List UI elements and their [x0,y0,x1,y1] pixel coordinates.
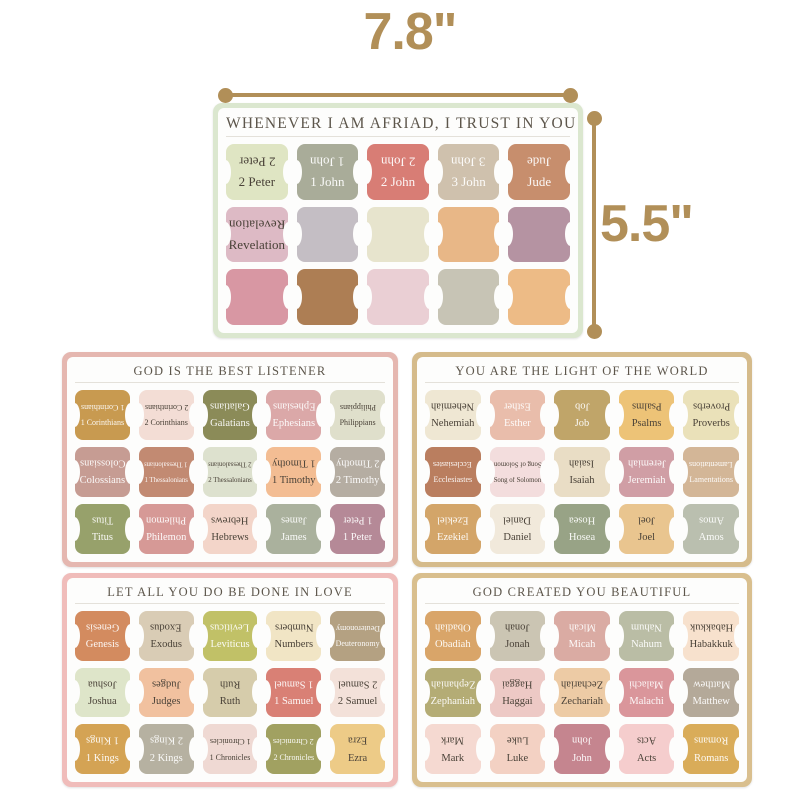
bible-tab: 2 Kings2 Kings [139,724,194,774]
sheet-title: WHENEVER I AM AFRIAD, I TRUST IN YOU [226,111,570,137]
tab-label-top: Exodus [150,621,182,633]
bible-tab: PhilemonPhilemon [139,504,194,554]
tab-label-top: 2 Chronicles [273,736,314,745]
tab-label-bottom: Titus [92,532,113,544]
tab-label-top: Jude [527,154,551,168]
measure-endpoint-dot [587,324,602,339]
tab-label-top: 3 John [451,154,485,168]
tab-label-top: 2 Timothy [336,457,379,469]
tab-label-bottom: 3 John [451,175,485,189]
blank-tab [297,269,359,325]
tab-label-top: Ephesians [273,400,316,412]
tab-label-top: 1 Timothy [272,457,315,469]
tab-label-bottom: Acts [637,753,656,765]
tab-label-bottom: Leviticus [210,639,249,651]
tab-label-bottom: 2 John [381,175,415,189]
height-dimension-label: 5.5" [600,194,693,254]
height-measure-line [592,118,596,331]
tab-label-bottom: Revelation [229,238,285,252]
bible-tab: HebrewsHebrews [203,504,258,554]
tab-label-bottom: 1 Thessalonians [144,477,187,484]
blank-tab [297,207,359,263]
bible-tab: EphesiansEphesians [266,390,321,440]
tab-label-top: Obadiah [435,621,471,633]
tab-label-bottom: Matthew [693,696,730,708]
bible-tab: RomansRomans [683,724,739,774]
bible-tab: JamesJames [266,504,321,554]
tab-label-bottom: Jeremiah [628,475,666,487]
sheet-panel: GOD IS THE BEST LISTENER 1 Corinthians1 … [67,357,393,562]
tab-label-top: 2 Corinthians [145,402,188,411]
tab-label-top: 1 Chronicles [210,736,251,745]
tab-label-bottom: Obadiah [435,639,471,651]
bible-tab: LamentationsLamentations [683,447,739,497]
tab-label-top: John [572,734,592,746]
bible-tab: NehemiahNehemiah [425,390,481,440]
tab-label-top: Esther [504,400,531,412]
measure-endpoint-dot [218,88,233,103]
tab-label-bottom: Ecclesiastes [433,476,472,485]
tab-label-top: Zechariah [561,678,603,690]
sheet-panel: YOU ARE THE LIGHT OF THE WORLD NehemiahN… [417,357,747,562]
tab-grid: NehemiahNehemiahEstherEstherJobJobPsalms… [425,390,739,554]
bible-tab: ZechariahZechariah [554,668,610,718]
measure-endpoint-dot [587,111,602,126]
tab-label-top: Job [575,400,590,412]
tab-label-bottom: Daniel [503,532,531,544]
tab-label-bottom: Genesis [86,639,119,651]
tab-label-bottom: John [572,753,592,765]
sticker-sheet-done-in-love: LET ALL YOU DO BE DONE IN LOVE GenesisGe… [62,573,398,787]
bible-tab: 2 Samuel2 Samuel [330,668,385,718]
bible-tab: NumbersNumbers [266,611,321,661]
tab-grid: 2 Peter2 Peter1 John1 John2 John2 John3 … [226,144,570,325]
tab-label-top: 1 Peter [343,514,372,526]
bible-tab: ObadiahObadiah [425,611,481,661]
tab-label-top: Jeremiah [628,457,666,469]
tab-label-bottom: Malachi [629,696,663,708]
tab-label-bottom: James [281,532,307,544]
tab-label-bottom: Micah [569,639,596,651]
bible-tab: 2 Thessalonians2 Thessalonians [203,447,258,497]
tab-label-top: Nahum [631,621,662,633]
tab-label-bottom: Nahum [631,639,662,651]
tab-label-top: 1 Thessalonians [144,460,187,467]
tab-grid: ObadiahObadiahJonahJonahMicahMicahNahumN… [425,611,739,774]
tab-label-bottom: Romans [694,753,728,765]
width-measure-line [225,93,571,97]
bible-tab: PsalmsPsalms [619,390,675,440]
tab-label-top: 2 John [381,154,415,168]
bible-tab: RevelationRevelation [226,207,288,263]
bible-tab: 1 Chronicles1 Chronicles [203,724,258,774]
sheet-panel: WHENEVER I AM AFRIAD, I TRUST IN YOU 2 P… [218,108,578,333]
bible-tab: 2 John2 John [367,144,429,200]
bible-tab: GenesisGenesis [75,611,130,661]
bible-tab: DeuteronomyDeuteronomy [330,611,385,661]
tab-label-bottom: 2 Peter [239,175,275,189]
blank-tab [367,207,429,263]
sheet-title: LET ALL YOU DO BE DONE IN LOVE [75,581,385,604]
bible-tab: JudeJude [508,144,570,200]
tab-label-top: Zephaniah [431,678,475,690]
tab-label-bottom: 1 Kings [86,753,119,765]
tab-label-bottom: Amos [699,532,724,544]
tab-label-top: Isaiah [569,457,594,469]
tab-label-top: Philemon [146,514,186,526]
bible-tab: JoelJoel [619,504,675,554]
bible-tab: 2 Corinthians2 Corinthians [139,390,194,440]
bible-tab: MalachiMalachi [619,668,675,718]
bible-tab: LukeLuke [490,724,546,774]
bible-tab: NahumNahum [619,611,675,661]
tab-label-top: Proverbs [693,400,730,412]
bible-tab: EcclesiastesEcclesiastes [425,447,481,497]
tab-label-top: Malachi [629,678,663,690]
bible-tab: EstherEsther [490,390,546,440]
bible-tab: PhilippiansPhilippians [330,390,385,440]
bible-tab: 1 Samuel1 Samuel [266,668,321,718]
tab-label-top: Romans [694,734,728,746]
tab-label-bottom: Ruth [220,696,240,708]
tab-label-bottom: Galatians [210,418,250,430]
tab-label-top: Mark [441,734,464,746]
bible-tab: MatthewMatthew [683,668,739,718]
sticker-sheet-you-are-the-light: YOU ARE THE LIGHT OF THE WORLD NehemiahN… [412,352,752,567]
blank-tab [226,269,288,325]
tab-label-bottom: Song of Solomon [494,477,542,484]
tab-label-bottom: Esther [504,418,531,430]
bible-tab: JoshuaJoshua [75,668,130,718]
sticker-sheet-whenever-i-am-afriad: WHENEVER I AM AFRIAD, I TRUST IN YOU 2 P… [213,103,583,338]
tab-label-bottom: 2 Thessalonians [208,477,251,484]
tab-label-bottom: Hebrews [211,532,248,544]
bible-tab: 1 Thessalonians1 Thessalonians [139,447,194,497]
tab-label-top: 1 Samuel [274,678,313,690]
tab-label-top: 1 Corinthians [81,402,124,411]
bible-tab: HabakkukHabakkuk [683,611,739,661]
bible-tab: 1 Peter1 Peter [330,504,385,554]
tab-label-top: Numbers [275,621,314,633]
width-dimension-label: 7.8" [330,2,490,62]
tab-label-bottom: Hosea [569,532,595,544]
tab-label-bottom: 2 Kings [150,753,183,765]
bible-tab: ProverbsProverbs [683,390,739,440]
tab-label-top: Micah [569,621,596,633]
tab-label-bottom: Deuteronomy [336,640,380,649]
tab-label-bottom: Numbers [275,639,314,651]
tab-label-bottom: Jude [527,175,551,189]
tab-label-top: Hosea [569,514,595,526]
bible-tab: ColossiansColossians [75,447,130,497]
tab-label-top: Ezekiel [437,514,468,526]
blank-tab [508,269,570,325]
tab-label-bottom: 1 Chronicles [210,754,251,763]
tab-label-top: Joshua [88,678,117,690]
tab-label-top: Leviticus [210,621,249,633]
tab-label-top: Joel [638,514,655,526]
tab-label-top: Nehemiah [431,400,474,412]
bible-tab: IsaiahIsaiah [554,447,610,497]
bible-tab: DanielDaniel [490,504,546,554]
tab-label-bottom: Judges [152,696,181,708]
tab-label-bottom: Proverbs [693,418,730,430]
bible-tab: HaggaiHaggai [490,668,546,718]
tab-label-top: Deuteronomy [336,623,380,632]
tab-label-bottom: Ephesians [273,418,316,430]
sheet-title: GOD CREATED YOU BEAUTIFUL [425,581,739,604]
tab-label-bottom: 1 Timothy [272,475,315,487]
bible-tab: ZephaniahZephaniah [425,668,481,718]
tab-label-top: Philippians [340,402,376,411]
sheet-title: YOU ARE THE LIGHT OF THE WORLD [425,360,739,383]
bible-tab: JudgesJudges [139,668,194,718]
tab-label-bottom: Haggai [502,696,532,708]
bible-tab: Song of SolomonSong of Solomon [490,447,546,497]
tab-label-bottom: Ezekiel [437,532,468,544]
tab-label-bottom: Job [575,418,590,430]
tab-label-bottom: Jonah [505,639,530,651]
tab-label-top: 2 Kings [150,734,183,746]
sticker-sheet-god-is-the-best-listener: GOD IS THE BEST LISTENER 1 Corinthians1 … [62,352,398,567]
bible-tab: JonahJonah [490,611,546,661]
tab-label-bottom: Isaiah [569,475,594,487]
tab-label-bottom: Ezra [348,753,367,765]
blank-tab [508,207,570,263]
tab-label-bottom: 1 Peter [343,532,372,544]
bible-tab: 1 Timothy1 Timothy [266,447,321,497]
tab-label-top: Song of Solomon [494,460,542,467]
tab-label-bottom: Exodus [150,639,182,651]
tab-label-top: Ecclesiastes [433,459,472,468]
bible-tab: 1 Kings1 Kings [75,724,130,774]
blank-tab [438,207,500,263]
bible-tab: MarkMark [425,724,481,774]
tab-label-bottom: Psalms [632,418,662,430]
tab-label-top: Matthew [693,678,730,690]
bible-tab: 1 John1 John [297,144,359,200]
bible-tab: MicahMicah [554,611,610,661]
tab-label-bottom: 2 Samuel [338,696,377,708]
sticker-sheet-god-created-you-beautiful: GOD CREATED YOU BEAUTIFUL ObadiahObadiah… [412,573,752,787]
bible-tab: 2 Chronicles2 Chronicles [266,724,321,774]
blank-tab [367,269,429,325]
tab-label-bottom: Zechariah [561,696,603,708]
bible-tab: ActsActs [619,724,675,774]
tab-grid: 1 Corinthians1 Corinthians2 Corinthians2… [75,390,385,554]
tab-label-bottom: Philippians [340,419,376,428]
sheet-panel: LET ALL YOU DO BE DONE IN LOVE GenesisGe… [67,578,393,782]
tab-label-top: Jonah [505,621,530,633]
tab-label-top: Acts [637,734,656,746]
tab-label-top: Colossians [80,457,126,469]
bible-tab: RuthRuth [203,668,258,718]
bible-tab: GalatiansGalatians [203,390,258,440]
tab-label-top: Amos [699,514,724,526]
tab-label-top: Titus [92,514,113,526]
tab-label-top: 2 Thessalonians [208,460,251,467]
tab-label-bottom: Luke [507,753,529,765]
tab-grid: GenesisGenesisExodusExodusLeviticusLevit… [75,611,385,774]
tab-label-bottom: Philemon [146,532,186,544]
tab-label-top: Luke [507,734,529,746]
tab-label-bottom: Lamentations [689,476,733,485]
tab-label-top: Judges [152,678,181,690]
bible-tab: JeremiahJeremiah [619,447,675,497]
bible-tab: JobJob [554,390,610,440]
tab-label-bottom: Zephaniah [431,696,475,708]
tab-label-top: 1 Kings [86,734,119,746]
tab-label-bottom: Joshua [88,696,117,708]
tab-label-top: Ezra [348,734,367,746]
bible-tab: AmosAmos [683,504,739,554]
tab-label-top: Daniel [503,514,531,526]
tab-label-bottom: 2 Corinthians [145,419,188,428]
tab-label-top: Galatians [210,400,250,412]
bible-tab: ExodusExodus [139,611,194,661]
tab-label-top: 2 Samuel [338,678,377,690]
tab-label-top: Lamentations [689,459,733,468]
sheet-panel: GOD CREATED YOU BEAUTIFUL ObadiahObadiah… [417,578,747,782]
bible-tab: 3 John3 John [438,144,500,200]
tab-label-bottom: Colossians [80,475,126,487]
tab-label-bottom: 2 Chronicles [273,754,314,763]
blank-tab [438,269,500,325]
tab-label-bottom: 1 Samuel [274,696,313,708]
bible-tab: LeviticusLeviticus [203,611,258,661]
tab-label-top: Ruth [220,678,240,690]
tab-label-top: 1 John [310,154,344,168]
tab-label-top: Haggai [502,678,532,690]
tab-label-top: James [281,514,307,526]
tab-label-bottom: Nehemiah [431,418,474,430]
bible-tab: JohnJohn [554,724,610,774]
tab-label-bottom: Mark [441,753,464,765]
tab-label-top: Hebrews [211,514,248,526]
bible-tab: HoseaHosea [554,504,610,554]
tab-label-bottom: Habakkuk [690,639,733,651]
bible-tab: 1 Corinthians1 Corinthians [75,390,130,440]
tab-label-bottom: 1 Corinthians [81,419,124,428]
bible-tab: EzekielEzekiel [425,504,481,554]
tab-label-top: Revelation [229,217,285,231]
tab-label-top: Habakkuk [690,621,733,633]
tab-label-top: 2 Peter [239,154,275,168]
tab-label-bottom: 1 John [310,175,344,189]
bible-tab: 2 Peter2 Peter [226,144,288,200]
bible-tab: TitusTitus [75,504,130,554]
bible-tab: 2 Timothy2 Timothy [330,447,385,497]
sheet-title: GOD IS THE BEST LISTENER [75,360,385,383]
tab-label-top: Psalms [632,400,662,412]
tab-label-bottom: 2 Timothy [336,475,379,487]
tab-label-bottom: Joel [638,532,655,544]
measure-endpoint-dot [563,88,578,103]
tab-label-top: Genesis [86,621,119,633]
bible-tab: EzraEzra [330,724,385,774]
